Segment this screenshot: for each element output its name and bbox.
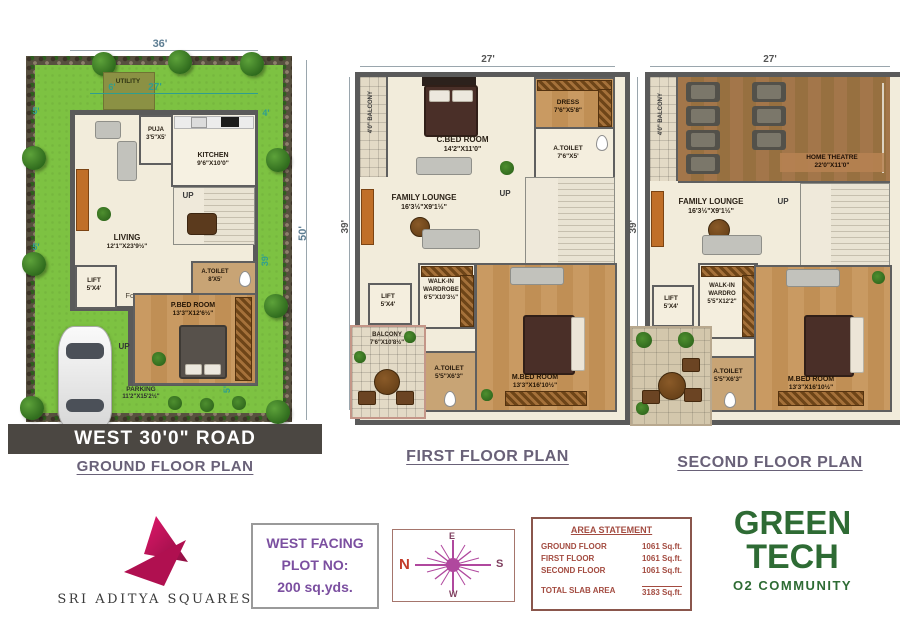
chair-icon [684,388,702,402]
plant-icon [97,207,111,221]
road-bar: WEST 30'0" ROAD [8,424,322,454]
tree-icon [264,294,288,318]
area-row: FIRST FLOOR 1061 Sq.ft. [541,553,682,565]
area-statement: AREA STATEMENT GROUND FLOOR 1061 Sq.ft. … [531,517,692,611]
tree-icon [240,52,264,76]
dim-line [360,66,615,67]
plant-icon [168,396,182,410]
pbedroom-label: P.BED ROOM 13'3"X12'6½" [139,301,247,319]
plant-icon [200,398,214,412]
recliner-icon [686,106,720,126]
kitchen-label: KITCHEN 9'6"X10'0" [175,151,251,169]
bed-icon [424,85,478,137]
living-label: LIVING 12'1"X23'9½" [85,233,169,252]
plot-facing: WEST FACING [253,533,377,555]
wardrobe-icon [460,275,474,327]
balcony-first: BALCONY 7'6"X10'8½" [350,325,426,419]
recliner-icon [752,130,786,150]
dim-27-first: 27' [468,53,508,66]
lift-label: LIFT 5'X4' [370,293,406,310]
dim-36: 36' [138,37,182,51]
road-label: WEST 30'0" ROAD [74,428,256,450]
lounge-label-second: FAMILY LOUNGE 16'3½"X9'1½" [665,197,757,216]
area-row: GROUND FLOOR 1061 Sq.ft. [541,541,682,553]
brand-name: SRI ADITYA SQUARES [40,592,270,607]
first-floor-title: FIRST FLOOR PLAN [355,448,620,466]
room-puja: PUJA 3'5"X5' [139,115,175,165]
kitchen-counter [174,116,254,129]
compass-s: S [496,558,503,570]
area-total-row: TOTAL SLAB AREA 3183 Sq.ft. [541,586,682,597]
plant-icon [152,352,166,366]
windshield-icon [66,343,104,359]
room-home-theatre: HOME THEATRE 22'0"X11'0" [678,77,890,183]
stairs [800,183,890,267]
dining-table-icon [187,213,217,235]
plot-size: 200 sq.yds. [253,577,377,599]
side-balcony: 4'0" BALCONY [650,77,678,181]
area-row-label: SECOND FLOOR [541,565,605,577]
toilet-label: A.TOILET 5'5"X6'3" [425,365,473,382]
dim-27-second: 27' [750,53,790,66]
pillow-icon [452,90,473,102]
sofa-icon [702,235,762,255]
chair-icon [396,391,414,405]
tv-unit-icon [361,189,374,245]
tree-icon [22,146,46,170]
area-row: SECOND FLOOR 1061 Sq.ft. [541,565,682,577]
side-balcony: 4'0" BALCONY [360,77,388,177]
dim-5-left-upper: 5' [28,106,44,118]
table-icon [658,372,686,400]
wardrobe-label: WALK-IN WARDRO 5'5"X12'2" [701,283,743,306]
recliner-icon [686,154,720,174]
stove-icon [221,117,239,127]
wardrobe-label: WALK-IN WARDROBE 6'5"X10'3½" [421,279,461,302]
bed-icon [804,315,854,377]
plant-icon [500,161,514,175]
toilet-label: A.TOILET 7'6"X5' [540,145,596,162]
room-lift-second: LIFT 5'X4' [652,285,694,327]
room-lift-first: LIFT 5'X4' [368,283,412,325]
floor-plan-sheet: 36' UTILITY 6' 27' 5' 5' 4' 39' 5' 50' [0,0,900,621]
tree-icon [266,148,290,172]
room-toilet-first: A.TOILET 5'5"X6'3" [422,351,478,412]
compass-n: N [399,556,410,573]
bed-icon [523,315,575,375]
up-label: UP [175,191,201,201]
room-mbedroom-second: M.BED ROOM 13'3"X16'10½" [754,265,892,412]
lounge-label-first: FAMILY LOUNGE 16'3½"X9'1½" [378,193,470,212]
compass: N S E W [392,529,515,602]
sri-aditya-logo [106,514,202,588]
plant-icon [354,351,366,363]
mbedroom-label: M.BED ROOM 13'3"X16'10½" [760,375,862,393]
puja-label: PUJA 3'5"X5' [141,127,171,143]
dim-39-first: 39' [339,220,352,234]
room-toilet-ground: A.TOILET 8'X5' [191,261,257,297]
cbedroom-label: C.BED ROOM 14'2"X11'0" [405,135,520,154]
compass-e: E [449,531,455,541]
up-label: UP [492,189,518,199]
pillow-icon [571,317,585,371]
sofa-icon [510,267,564,285]
plant-icon [481,389,493,401]
tv-unit-icon [76,169,89,231]
wc-icon [596,135,608,151]
second-floor-title: SECOND FLOOR PLAN [645,454,895,472]
side-balcony-label: 4'0" BALCONY [658,93,666,135]
dim-5-left-lower: 5' [28,242,44,254]
plot-number: PLOT NO: [253,555,377,577]
area-row-label: FIRST FLOOR [541,553,594,565]
recliner-icon [686,82,720,102]
compass-w: W [449,589,458,599]
room-kitchen: KITCHEN 9'6"X10'0" [171,115,255,187]
plant-icon [232,396,246,410]
up-label: UP [770,197,796,207]
pillow-icon [185,364,202,375]
dim-39-side: 39' [260,254,272,266]
wardrobe-icon [235,297,252,381]
plant-icon [872,271,885,284]
room-wardrobe-first: WALK-IN WARDROBE 6'5"X10'3½" [418,263,476,329]
rear-window-icon [66,399,104,412]
toilet-label: A.TOILET 8'X5' [193,269,237,285]
area-total-value: 3183 Sq.ft. [642,586,682,597]
room-pbedroom: P.BED ROOM 13'3"X12'6½" [133,293,257,385]
sofa-icon [117,141,137,181]
greentech-line1: GREEN [700,506,885,540]
bed-icon [179,325,227,379]
mbedroom-label: M.BED ROOM 13'3"X16'10½" [483,373,587,391]
sink-icon [191,117,207,128]
pillow-icon [850,317,864,373]
area-statement-title: AREA STATEMENT [541,525,682,535]
parking-label: PARKING 11'2"X15'2½" [108,386,174,402]
wc-icon [444,391,456,407]
recliner-icon [752,106,786,126]
sofa-icon [422,229,480,249]
tree-icon [266,400,290,424]
area-row-value: 1061 Sq.ft. [642,541,682,553]
sofa-icon [95,121,121,139]
up-entry-label: UP [112,342,136,352]
greentech-line2: TECH [700,540,885,575]
area-row-value: 1061 Sq.ft. [642,553,682,565]
dress-label: DRESS 7'6"X5'8" [538,99,598,116]
greentech-line3: O2 COMMUNITY [700,578,885,593]
chair-icon [642,390,660,404]
ground-floor-title: GROUND FLOOR PLAN [8,458,322,475]
dim-27: 27' [140,81,170,94]
chair-icon [682,358,700,372]
wardrobe-icon [505,391,587,406]
area-row-value: 1061 Sq.ft. [642,565,682,577]
plot-info-box: WEST FACING PLOT NO: 200 sq.yds. [251,523,379,609]
lift-label: LIFT 5'X4' [654,295,688,312]
dim-6: 6' [104,82,120,94]
greentech-logo: GREEN TECH O2 COMMUNITY [700,506,885,593]
tree-icon [20,396,44,420]
lift-label: LIFT 5'X4' [77,277,111,294]
tree-icon [22,252,46,276]
chair-icon [358,391,376,405]
car-icon [58,326,112,430]
stair-landing [801,184,831,266]
pillow-icon [204,364,221,375]
plant-icon [404,331,416,343]
wc-icon [239,271,251,287]
room-dress: DRESS 7'6"X5'8" [534,77,615,131]
sofa-icon [416,157,472,175]
dim-line [650,66,890,67]
wc-icon [724,392,736,408]
dim-39-second: 39' [627,220,640,234]
stair-landing [526,178,558,266]
plant-icon [636,332,652,348]
tree-icon [168,50,192,74]
wardrobe-icon [598,89,612,127]
wardrobe-icon [778,391,864,406]
side-balcony-label: 4'0" BALCONY [368,91,376,133]
room-mbedroom-first: M.BED ROOM 13'3"X16'10½" [475,263,617,412]
stairs [525,177,615,267]
dim-4-right: 4' [258,108,274,120]
recliner-icon [752,82,786,102]
theatre-label: HOME THEATRE 22'0"X11'0" [780,153,884,172]
room-lift-ground: LIFT 5'X4' [75,265,117,309]
tv-unit-icon [651,191,664,247]
recliner-icon [686,130,720,150]
room-toilet-top-first: A.TOILET 7'6"X5' [534,127,615,181]
pillow-icon [429,90,450,102]
sofa-icon [786,269,840,287]
terrace-second [630,326,712,426]
plant-icon [678,332,694,348]
dim-50: 50' [296,226,310,241]
area-row-label: GROUND FLOOR [541,541,607,553]
area-total-label: TOTAL SLAB AREA [541,586,615,597]
dim-5-bottom: 5' [222,386,234,393]
